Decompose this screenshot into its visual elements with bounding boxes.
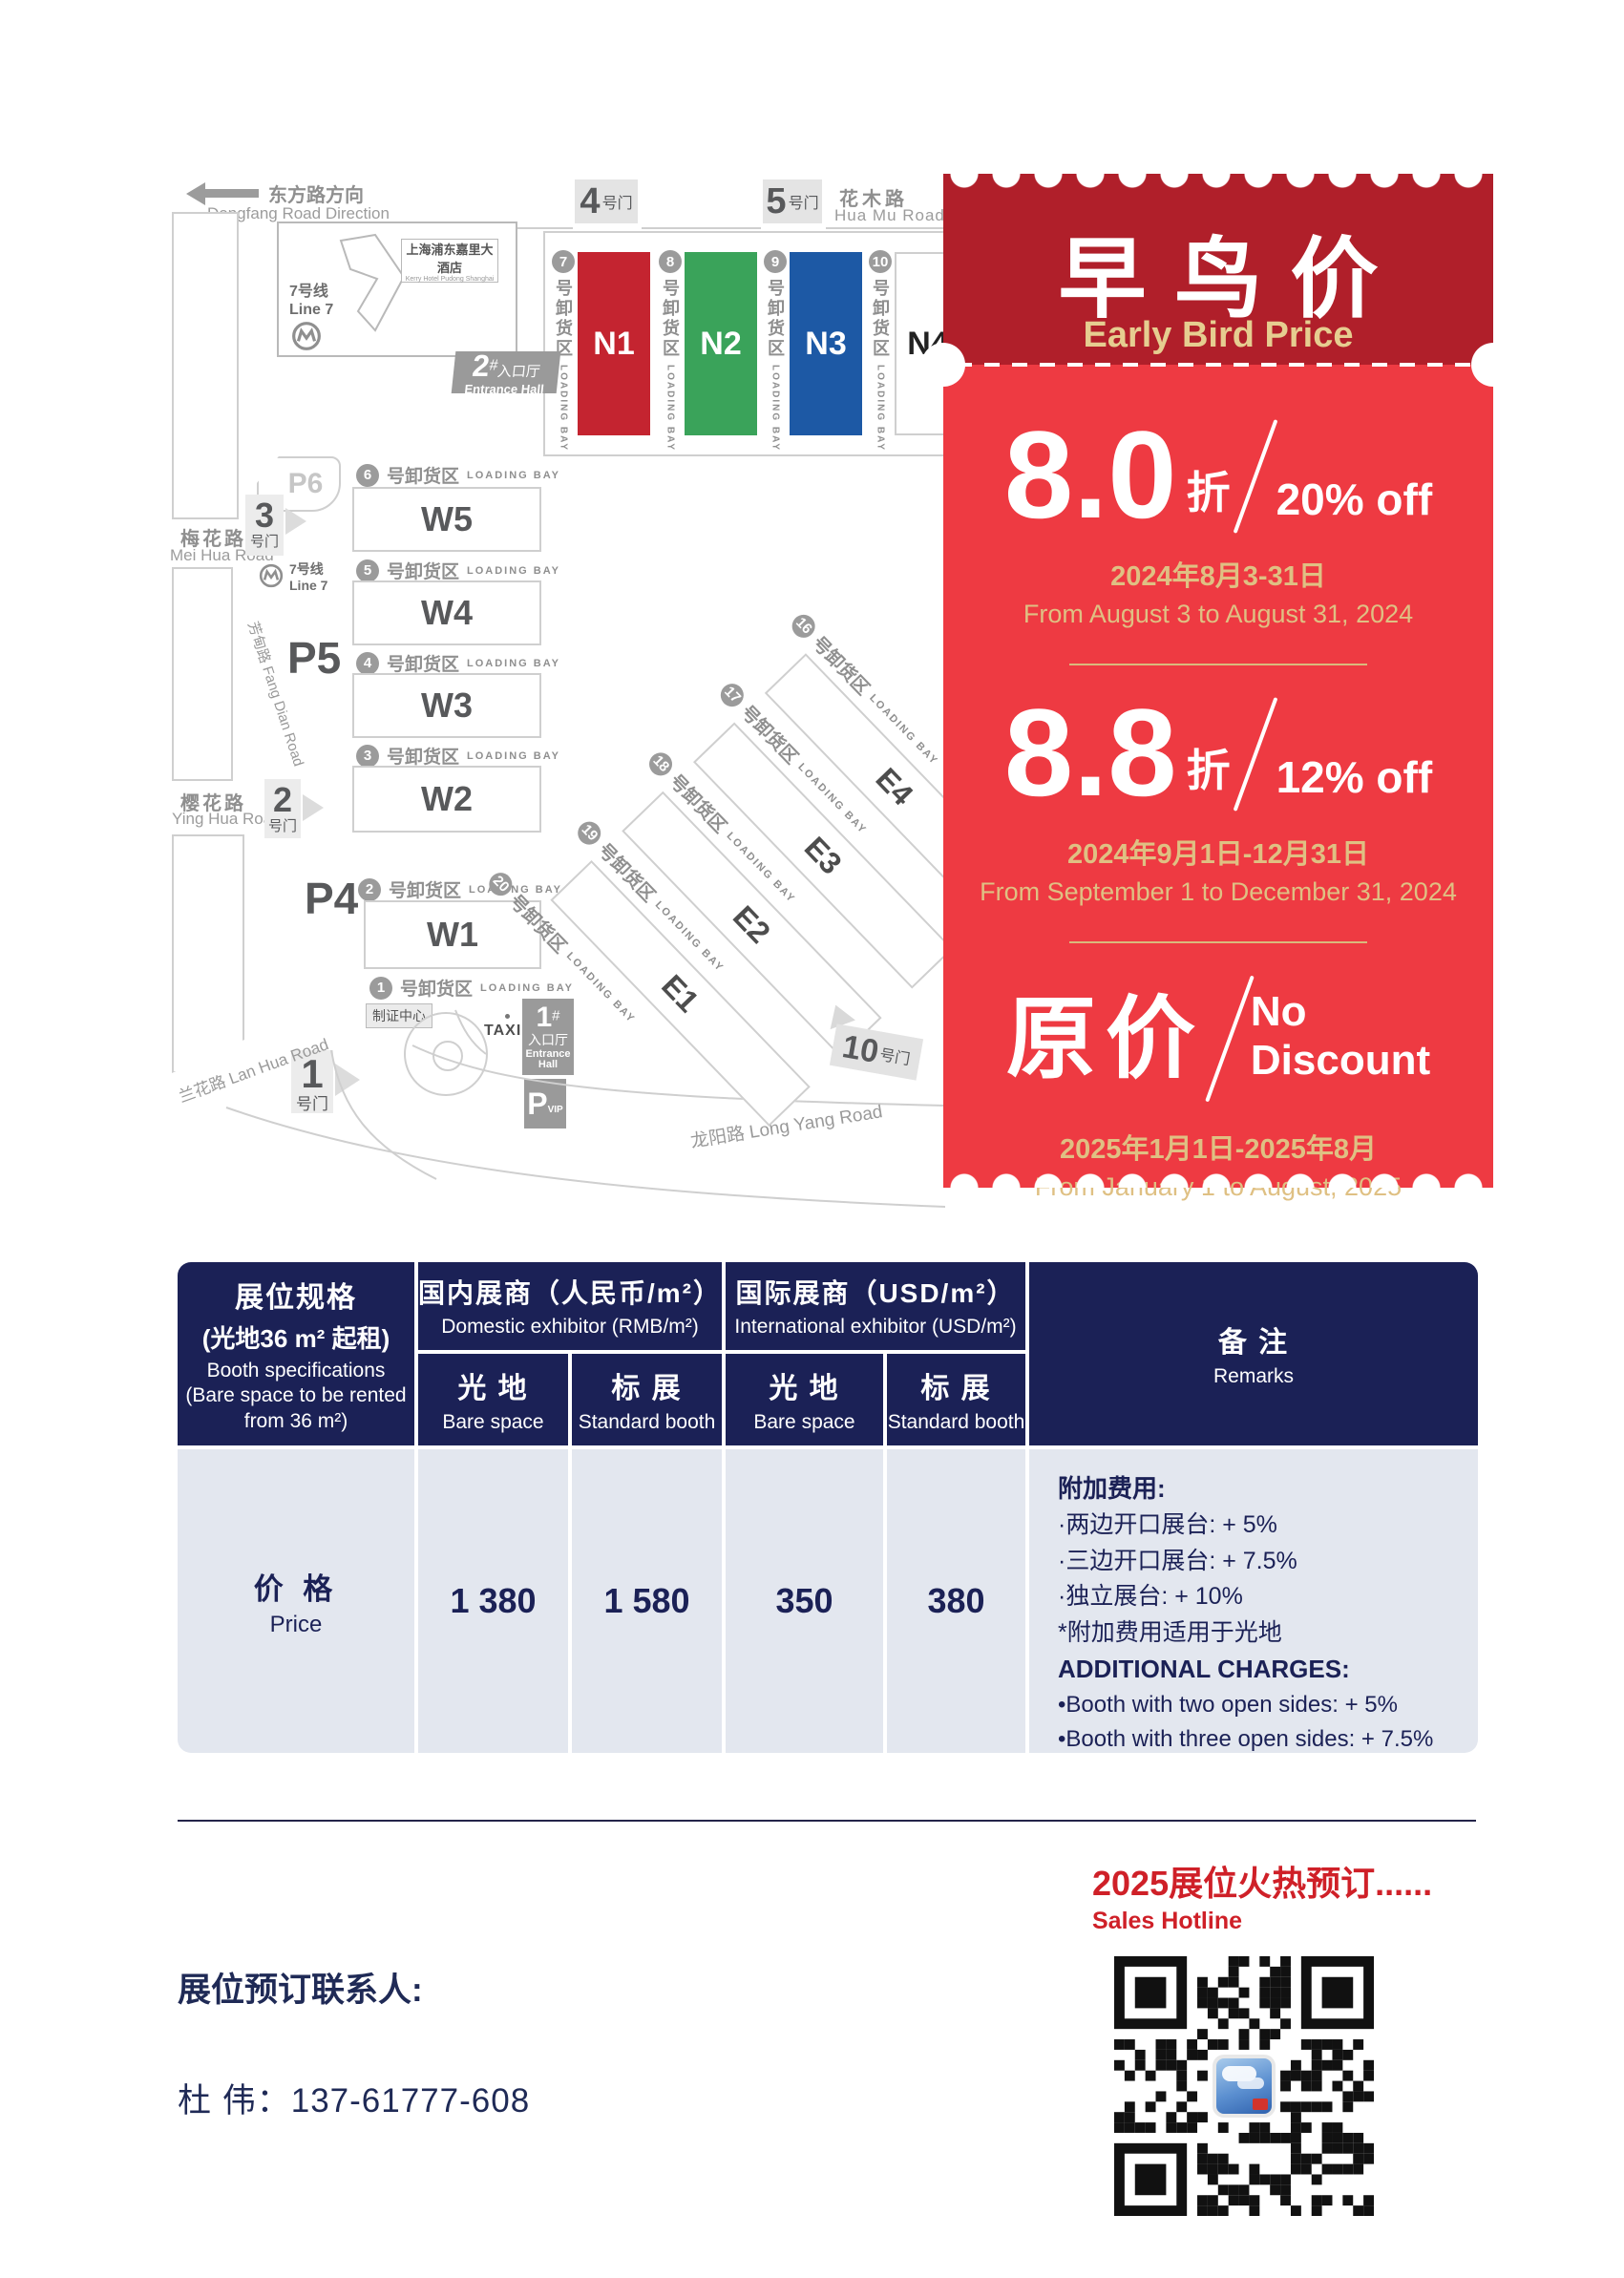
loading-bay-label: LOADING BAY (770, 365, 781, 452)
value-intl-std: 380 (927, 1581, 984, 1621)
std-en: Standard booth (579, 1410, 716, 1435)
bay-number: 4 (356, 652, 379, 675)
domestic-zh: 国内展商（人民币/m²） (418, 1273, 722, 1311)
dongfang-road-label-zh: 东方路方向 (268, 179, 364, 207)
bay-number: 2 (358, 878, 381, 901)
bay-suffix: 号卸货区 (658, 279, 683, 359)
ticket-header: 早鸟价 Early Bird Price (943, 174, 1493, 365)
tier-3-date-zh: 2025年1月1日-2025年8月 (1060, 1127, 1377, 1167)
bay-number: 16 (788, 610, 820, 643)
bay-number: 18 (644, 748, 677, 780)
tier-3-discount-line1: No (1251, 988, 1430, 1037)
bay-suffix: 号卸货区 (387, 743, 459, 769)
metro-icon (259, 563, 284, 588)
contact-label: 展位预订联系人: (178, 1963, 423, 2012)
cloud-shape (1237, 2078, 1264, 2089)
intl-zh: 国际展商（USD/m²） (735, 1273, 1015, 1311)
gate-2-arrow-icon (303, 794, 324, 821)
bay-number: 3 (356, 745, 379, 768)
loading-bay-label: LOADING BAY (875, 365, 886, 452)
price-table: 展位规格 (光地36 m² 起租) Booth specifications (… (178, 1262, 1478, 1753)
bay-suffix: 号卸货区 (763, 279, 788, 359)
gate-3-number: 3 (245, 498, 284, 533)
hall-e4-label: E4 (869, 761, 920, 812)
tier-1-discount: 20% off (1276, 474, 1433, 525)
remarks-header-cell: 备 注 Remarks (1029, 1262, 1478, 1445)
tier-1-date-en: From August 3 to August 31, 2024 (1023, 600, 1413, 629)
metro-en: Line 7 (289, 301, 333, 319)
spec-en3: from 36 m²) (244, 1409, 348, 1434)
gate-4-number: 4 (580, 181, 600, 222)
gate-suffix: 号门 (264, 819, 301, 833)
price-cell-intl-bare: 350 (726, 1449, 883, 1753)
ticket-perforation-bottom (943, 1171, 1493, 1188)
remarks-en: Remarks (1213, 1364, 1294, 1389)
slash-divider (1233, 419, 1277, 534)
remarks-cn-line: ·三边开口展台: + 7.5% (1058, 1544, 1297, 1580)
bay-suffix: 号卸货区 (868, 279, 893, 359)
remarks-en-line: •Booth with three open sides: + 7.5% (1058, 1722, 1433, 1753)
tier-1: 8.0 折 20% off (1004, 416, 1432, 533)
price-cell-domestic-std: 1 580 (572, 1449, 722, 1753)
tier-2: 8.8 折 12% off (1004, 694, 1432, 811)
loading-bay-label: LOADING BAY (480, 982, 574, 994)
venue-map: 东方路方向 Dongfang Road Direction 4 号门 5 号门 … (169, 172, 945, 1232)
red-shape (1253, 2099, 1268, 2110)
loading-bay-5: 5 号卸货区 LOADING BAY (356, 558, 560, 583)
tier-2-value: 8.8 (1004, 696, 1177, 811)
price-cell-intl-std: 380 (887, 1449, 1025, 1753)
loading-bay-9: 9 号卸货区 LOADING BAY (761, 250, 790, 452)
slash-divider (1205, 976, 1255, 1103)
hall-w5-label: W5 (421, 499, 473, 539)
gate-2: 2 号门 (264, 779, 301, 838)
bay-number: 9 (764, 250, 787, 273)
tier-2-unit: 折 (1187, 736, 1231, 799)
hotline-subtitle: Sales Hotline (1092, 1908, 1242, 1935)
hotel-name-en: Kerry Hotel Pudong Shanghai (406, 276, 495, 283)
bay-number: 7 (552, 250, 575, 273)
gate-10-number: 10 (839, 1028, 881, 1071)
bay-number: 17 (716, 679, 749, 711)
remarks-body-cell: 附加费用: ·两边开口展台: + 5% ·三边开口展台: + 7.5% ·独立展… (1029, 1449, 1478, 1753)
metro-icon (291, 321, 322, 351)
loading-bay-10: 10 号卸货区 LOADING BAY (866, 250, 895, 452)
metro-line7-label-2: 7号线 Line 7 (289, 561, 327, 594)
loading-bay-8: 8 号卸货区 LOADING BAY (656, 250, 685, 452)
ticket-title-en: Early Bird Price (943, 315, 1493, 356)
hall-n2: N2 (685, 252, 757, 435)
tier-1-value: 8.0 (1004, 418, 1177, 533)
bay-suffix: 号卸货区 (551, 279, 576, 359)
domestic-en: Domestic exhibitor (RMB/m²) (441, 1315, 699, 1339)
value-domestic-std: 1 580 (603, 1581, 689, 1621)
city-block (172, 567, 233, 781)
hall-n3: N3 (790, 252, 862, 435)
loading-bay-6: 6 号卸货区 LOADING BAY (356, 462, 560, 488)
bay-number: 5 (356, 559, 379, 582)
tier-3: 原价 No Discount (1006, 972, 1430, 1106)
entrance-en: Entrance Hall (464, 383, 544, 395)
intl-en: International exhibitor (USD/m²) (734, 1315, 1016, 1339)
hotline-title: 2025展位火热预订...... (1092, 1856, 1432, 1906)
city-block (172, 212, 239, 519)
tier-3-discount-line2: Discount (1251, 1037, 1430, 1086)
ticket-body: 8.0 折 20% off 2024年8月3-31日 From August 3… (943, 365, 1493, 1188)
hall-n2-label: N2 (700, 326, 741, 363)
hall-e1-label: E1 (655, 968, 707, 1020)
bay-suffix: 号卸货区 (387, 558, 459, 583)
hall-n1-label: N1 (593, 326, 634, 363)
std-zh: 标 展 (920, 1364, 991, 1406)
hall-w1-label: W1 (427, 915, 478, 955)
gate-5-number: 5 (766, 181, 786, 222)
huamu-road-en: Hua Mu Road (834, 206, 945, 225)
tier-3-discount: No Discount (1251, 988, 1430, 1085)
intl-std-header: 标 展 Standard booth (887, 1354, 1025, 1445)
ticket-notch-right (1471, 343, 1515, 387)
domestic-bare-header: 光 地 Bare space (418, 1354, 568, 1445)
qr-center-logo (1213, 2055, 1276, 2118)
metro-zh: 7号线 (289, 561, 327, 578)
price-zh: 价 格 (254, 1565, 339, 1608)
ticket-perforation-top (943, 174, 1493, 190)
bay-number: 8 (659, 250, 682, 273)
parking-p5-label: P5 (287, 632, 341, 684)
domestic-std-header: 标 展 Standard booth (572, 1354, 722, 1445)
tier-3-value: 原价 (1006, 994, 1205, 1084)
parking-p4-label: P4 (305, 873, 358, 924)
remarks-zh: 备 注 (1218, 1318, 1289, 1360)
price-cell-domestic-bare: 1 380 (418, 1449, 568, 1753)
spec-en1: Booth specifications (207, 1359, 386, 1383)
hall-w5: W5 (352, 487, 541, 552)
entrance-zh: 入口厅 (496, 364, 541, 380)
tier-1-date-zh: 2024年8月3-31日 (1110, 554, 1326, 594)
entrance-hall-2: 2#入口厅 Entrance Hall (452, 351, 561, 393)
hotel-name-zh: 上海浦东嘉里大酒店 (402, 240, 497, 276)
hall-w4: W4 (352, 580, 541, 645)
loading-bay-label: LOADING BAY (559, 365, 569, 452)
remarks-cn-line: *附加费用适用于光地 (1058, 1615, 1282, 1652)
spec-zh1: 展位规格 (235, 1274, 357, 1316)
metro-line7-label: 7号线 Line 7 (289, 283, 333, 319)
remarks-cn-line: ·独立展台: + 10% (1058, 1579, 1243, 1615)
road-line (642, 227, 761, 229)
hotel-label-box: 上海浦东嘉里大酒店 Kerry Hotel Pudong Shanghai (401, 239, 498, 283)
hall-w2: W2 (352, 766, 541, 833)
hall-w2-label: W2 (421, 779, 473, 819)
std-zh: 标 展 (611, 1364, 682, 1406)
spec-header-cell: 展位规格 (光地36 m² 起租) Booth specifications (… (178, 1262, 414, 1445)
bare-en: Bare space (442, 1410, 543, 1435)
hall-n3-label: N3 (805, 326, 846, 363)
qr-code (1114, 1956, 1374, 2216)
hall-e3-label: E3 (797, 830, 849, 881)
tier-2-date-zh: 2024年9月1日-12月31日 (1067, 832, 1369, 872)
bare-zh: 光 地 (769, 1364, 839, 1406)
loading-bay-4: 4 号卸货区 LOADING BAY (356, 650, 560, 676)
hall-w4-label: W4 (421, 593, 473, 633)
remarks-en-line: •Booth with two open sides: + 5% (1058, 1688, 1398, 1722)
spec-en2: (Bare space to be rented (185, 1383, 406, 1408)
intl-bare-header: 光 地 Bare space (726, 1354, 883, 1445)
value-domestic-bare: 1 380 (450, 1581, 536, 1621)
loading-bay-label: LOADING BAY (467, 565, 560, 577)
bare-zh: 光 地 (457, 1364, 528, 1406)
ticket-notch-left (921, 343, 965, 387)
gold-divider (1069, 941, 1367, 943)
loading-bay-label: LOADING BAY (467, 750, 560, 762)
metro-zh: 7号线 (289, 283, 333, 301)
gold-divider (1069, 664, 1367, 665)
tier-1-unit: 折 (1187, 458, 1231, 521)
domestic-header-cell: 国内展商（人民币/m²） Domestic exhibitor (RMB/m²) (418, 1262, 722, 1350)
bay-number: 6 (356, 464, 379, 487)
remarks-en-heading: ADDITIONAL CHARGES: (1058, 1651, 1350, 1688)
intl-header-cell: 国际展商（USD/m²） International exhibitor (US… (726, 1262, 1025, 1350)
contact-phone: 杜 伟：137-61777-608 (178, 2074, 530, 2122)
remarks-cn-heading: 附加费用: (1058, 1470, 1166, 1508)
gate-3-arrow-icon (285, 508, 306, 535)
loading-bay-label: LOADING BAY (467, 470, 560, 481)
std-en: Standard booth (888, 1410, 1025, 1435)
gate-4: 4 号门 (575, 179, 638, 223)
hall-w3: W3 (352, 673, 541, 738)
bay-suffix: 号卸货区 (387, 462, 459, 488)
loading-bay-label: LOADING BAY (665, 365, 676, 452)
bay-suffix: 号卸货区 (389, 876, 461, 902)
gate-2-number: 2 (264, 783, 301, 817)
spec-zh2: (光地36 m² 起租) (202, 1319, 390, 1355)
gate-suffix: 号门 (878, 1042, 913, 1069)
gate-suffix: 号门 (602, 190, 633, 213)
price-en: Price (270, 1612, 323, 1638)
entrance-2-number: 2 (471, 348, 492, 383)
loading-bay-3: 3 号卸货区 LOADING BAY (356, 743, 560, 769)
tier-2-date-en: From September 1 to December 31, 2024 (980, 877, 1457, 907)
gate-5: 5 号门 (763, 179, 822, 223)
ticket-dashed-line (957, 363, 1480, 367)
gate-3: 3 号门 (245, 495, 284, 556)
gate-suffix: 号门 (245, 535, 284, 549)
hall-n1: N1 (578, 252, 650, 435)
ticket-content: 8.0 折 20% off 2024年8月3-31日 From August 3… (943, 365, 1493, 1202)
bare-en: Bare space (753, 1410, 854, 1435)
footer-divider (178, 1820, 1476, 1822)
hall-w3-label: W3 (421, 686, 473, 726)
early-bird-ticket: 早鸟价 Early Bird Price 8.0 折 20% off 2024年… (943, 174, 1493, 1188)
road-line (826, 227, 944, 229)
value-intl-bare: 350 (775, 1581, 833, 1621)
tier-2-discount: 12% off (1276, 751, 1433, 803)
parking-p6-label: P6 (288, 468, 324, 500)
gate-suffix: 号门 (789, 190, 819, 213)
bay-suffix: 号卸货区 (387, 650, 459, 676)
metro-en: Line 7 (289, 578, 327, 594)
loading-bay-label: LOADING BAY (467, 658, 560, 669)
west-direction-arrow-icon (205, 189, 259, 198)
price-label-cell: 价 格 Price (178, 1449, 414, 1753)
remarks-cn-line: ·两边开口展台: + 5% (1058, 1508, 1277, 1544)
bay-number: 10 (869, 250, 892, 273)
bay-number: 19 (574, 816, 606, 849)
hall-e2-label: E2 (726, 898, 777, 950)
slash-divider (1233, 697, 1277, 812)
